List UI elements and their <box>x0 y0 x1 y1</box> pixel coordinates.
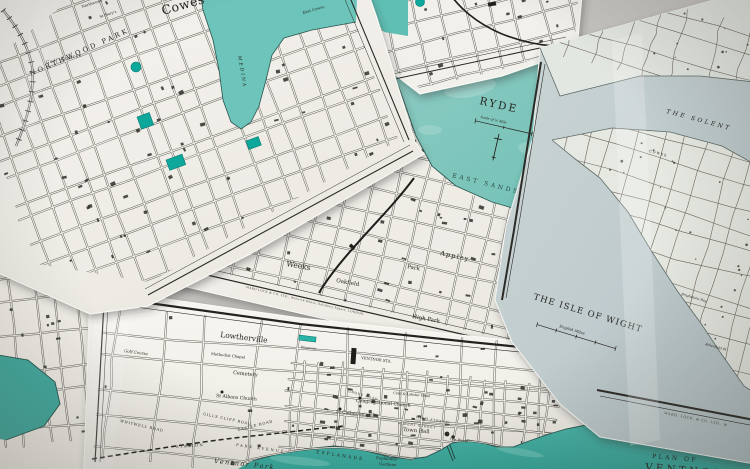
map-building <box>169 316 173 319</box>
map-building <box>423 345 427 347</box>
map-building <box>51 322 54 325</box>
map-dot <box>672 160 673 161</box>
map-building <box>330 366 335 369</box>
map-building <box>491 253 495 255</box>
maps-photo-canvas: WARD LOCK & CO. LTD., Warwick House, Sal… <box>0 0 750 469</box>
map-building <box>429 379 433 381</box>
map-building <box>463 413 468 417</box>
map-building <box>368 434 371 437</box>
map-dot <box>738 269 740 271</box>
map-building <box>489 393 493 396</box>
map-dot <box>673 162 675 164</box>
map-dot <box>745 243 748 246</box>
map-building <box>533 412 537 415</box>
map-dot <box>675 57 676 58</box>
map-building <box>446 389 450 391</box>
map-building <box>521 406 525 409</box>
map-dot <box>737 265 739 267</box>
map-building <box>485 391 488 393</box>
gas-holder <box>445 432 450 437</box>
map-building <box>518 397 522 400</box>
maps-photo: WARD LOCK & CO. LTD., Warwick House, Sal… <box>0 0 750 469</box>
map-dot <box>719 181 721 183</box>
map-dot <box>689 231 691 233</box>
map-dot <box>687 68 689 70</box>
map-building <box>537 423 539 426</box>
map-building <box>411 434 416 436</box>
map-building <box>552 400 555 403</box>
map-building <box>320 420 325 424</box>
map-building <box>556 24 558 27</box>
map-dot <box>704 324 706 326</box>
fragment-pond <box>416 0 425 7</box>
map-building <box>384 395 388 399</box>
map-building <box>143 210 147 214</box>
map-dot <box>725 51 727 53</box>
map-dot <box>747 44 749 46</box>
map-dot <box>747 219 749 221</box>
cowes-green-circle <box>131 62 141 72</box>
map-dot <box>722 316 724 318</box>
map-building <box>408 281 412 284</box>
map-building <box>505 421 508 424</box>
church-mark <box>221 391 224 394</box>
map-building <box>464 218 467 220</box>
map-dot <box>675 229 677 231</box>
map-building <box>360 444 365 447</box>
map-building <box>248 409 252 411</box>
map-dot <box>701 18 703 20</box>
sea-mottle <box>418 125 442 135</box>
map-dot <box>741 275 742 276</box>
map-building <box>324 438 328 440</box>
map-building <box>171 86 174 89</box>
map-building <box>47 324 49 327</box>
map-building <box>478 420 483 424</box>
map-building <box>380 220 384 224</box>
map-building <box>553 404 558 406</box>
map-dot <box>724 28 725 29</box>
map-building <box>359 405 362 407</box>
map-dot <box>721 51 724 54</box>
map-dot <box>734 289 736 291</box>
map-building <box>327 374 331 376</box>
map-dot <box>720 306 722 308</box>
map-dot <box>676 43 678 45</box>
map-building <box>287 251 290 254</box>
map-dot <box>695 258 696 259</box>
map-building <box>435 355 438 357</box>
map-dot <box>684 12 686 14</box>
map-building <box>491 431 494 433</box>
map-dot <box>714 338 716 340</box>
map-building <box>395 443 398 446</box>
map-building <box>424 8 427 11</box>
map-dot <box>664 207 666 209</box>
map-dot <box>660 187 661 188</box>
map-dot <box>653 52 655 54</box>
map-building <box>553 421 556 424</box>
map-dot <box>609 169 611 171</box>
map-building <box>44 365 47 368</box>
map-building <box>10 308 13 311</box>
map-building <box>292 424 295 427</box>
map-building <box>76 416 78 418</box>
map-building <box>474 422 479 424</box>
map-building <box>287 387 289 391</box>
map-building <box>491 325 493 329</box>
map-dot <box>717 66 720 69</box>
